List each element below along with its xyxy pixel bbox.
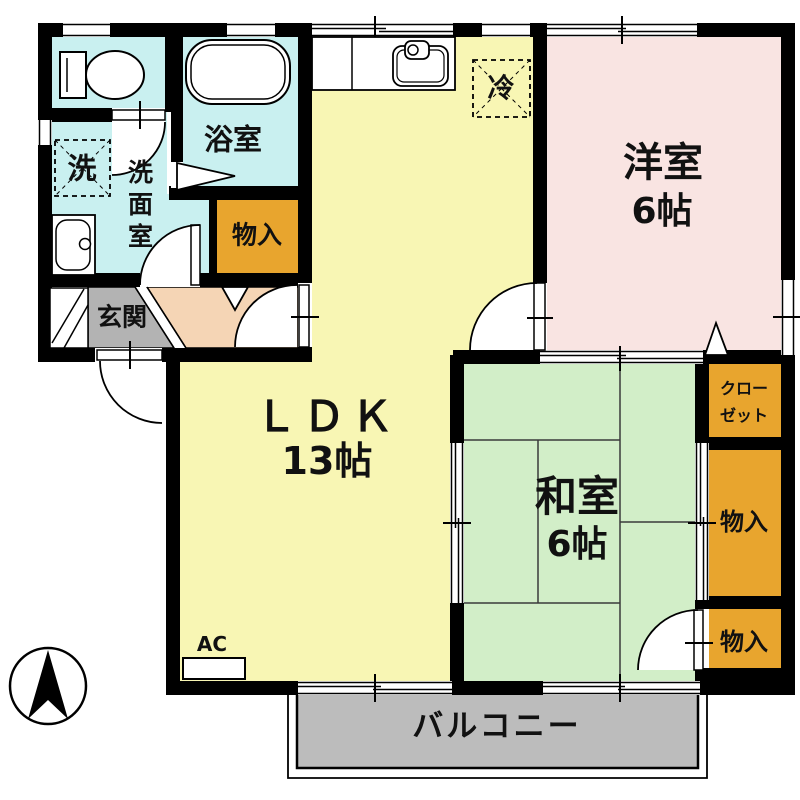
japanese-room-label: 和室 <box>535 476 619 518</box>
ldk-size-label: 13帖 <box>282 442 373 480</box>
refrigerator-label: 冷 <box>488 76 515 103</box>
japanese-western-sliding-door <box>540 350 703 364</box>
north-compass-icon <box>10 648 86 724</box>
storage-middle-label: 物入 <box>720 510 768 534</box>
shoe-cabinet <box>50 288 88 348</box>
western-room-label: 洋室 <box>623 143 703 183</box>
toilet-window <box>63 23 110 37</box>
bath-window <box>227 23 275 37</box>
bathroom-label: 浴室 <box>204 126 262 155</box>
washbasin <box>52 215 95 275</box>
toilet-door-panel <box>112 110 165 120</box>
japanese-room-balcony-window <box>543 681 700 695</box>
entrance-label: 玄関 <box>97 305 147 330</box>
western-room-size-label: 6帖 <box>631 194 692 230</box>
western-room-door-panel <box>534 283 545 350</box>
storage-bottom-door-panel <box>694 610 703 670</box>
bathtub <box>186 40 290 104</box>
storage-top-label: 物入 <box>232 223 282 248</box>
kitchen-counter <box>312 37 455 90</box>
laundry-label: 洗 <box>67 155 96 184</box>
storage-middle-sliding-door <box>695 443 709 600</box>
closet-label-line1: クロー <box>720 381 768 397</box>
fridge-window <box>482 23 530 37</box>
washroom-side-window <box>38 120 52 145</box>
ac-unit-box <box>183 658 245 679</box>
floor-plan-drawing <box>0 0 800 800</box>
toilet-fixture <box>60 51 144 99</box>
ac-label: AC <box>197 634 227 654</box>
washroom-door-panel <box>191 225 200 285</box>
balcony-label: バルコニー <box>412 712 581 743</box>
ldk-label: ＬＤＫ <box>255 396 399 438</box>
closet-floor <box>709 364 781 437</box>
storage-bottom-label: 物入 <box>720 630 768 654</box>
kitchen-sliding-window <box>312 23 453 37</box>
closet-label-line2: ゼット <box>720 408 768 424</box>
floor-plan: ＬＤＫ 13帖 洋室 6帖 和室 6帖 浴室 洗面室 洗 玄関 物入 クロー ゼ… <box>0 0 800 800</box>
washroom-label: 洗面室 <box>127 159 152 255</box>
entrance-door-swing <box>100 361 162 423</box>
japanese-room-size-label: 6帖 <box>546 527 607 563</box>
